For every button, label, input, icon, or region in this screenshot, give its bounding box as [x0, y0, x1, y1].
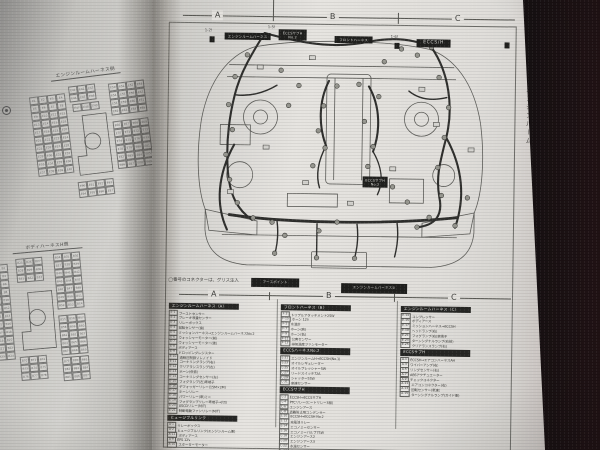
engine-bay-wiring-diagram: [166, 24, 515, 279]
connector-label: クリアランスランプ(右): [412, 343, 447, 348]
connector-location-grid-engine: エンジンルームハーネス側 E1E2E3E4E5E6E7E8E9E10E11E12…: [27, 63, 160, 206]
table-section-header: エンジンルームハーネス〈C〉: [401, 305, 471, 313]
grid-cell: E97: [105, 186, 115, 195]
grid-cell: E49: [90, 101, 100, 110]
left-book-page: エンジンルームハーネス側 E1E2E3E4E5E6E7E8E9E10E11E12…: [0, 0, 158, 450]
right-book-page: A B C: [152, 0, 552, 450]
table-row: E-25クリアランスランプ(右): [400, 343, 508, 349]
engine-outline-icon: [18, 290, 57, 351]
top-column-ruler: [183, 15, 515, 21]
connector-table-column-b: フロントハーネス〈B〉F-3トリプルアタッチメント25WF-15ホーン 12VF…: [279, 302, 393, 450]
connector-code: L-31: [280, 380, 290, 386]
connector-label: スターターモーター: [178, 442, 208, 447]
harness-label-eccs-h: ECCS/H: [416, 39, 450, 47]
table-row: F-13排気温度ファンモーター: [280, 341, 392, 347]
connector-code: E-25: [400, 342, 410, 348]
grid-cell: B33: [34, 273, 44, 282]
connector-label: 車速センサー: [291, 380, 311, 385]
connector-label: ターンシグナルランプ(ガイド側): [411, 392, 459, 398]
grid-cells: E1E2E3E4E5E6E7E8E9E10E11E12E13E14E15E16E…: [28, 73, 160, 206]
grid-cell: B54: [75, 299, 85, 308]
harness-label-front: フロントハーネス: [335, 36, 373, 44]
table-row: L-31車速センサー: [280, 380, 392, 386]
connector-location-grid-body: ボディハーネスH側 B1B2B3B4B5B6B7B8B9B10B11B12B13…: [0, 239, 118, 387]
grid-cell: B24: [6, 351, 16, 360]
column-marker-c: C: [452, 14, 464, 24]
connector-table-column-c: エンジンルームハーネス〈C〉E-14コンプレッサーE-15ボディアースE-17ミ…: [400, 304, 509, 398]
connector-label: 制動電動ファンリレー(M/T): [179, 408, 220, 414]
book-photo: エンジンルームハーネス側 E1E2E3E4E5E6E7E8E9E10E11E12…: [0, 0, 600, 450]
page-title: エンジンルーム: [524, 87, 533, 146]
connector-code: A-15: [400, 391, 410, 397]
callout-square-icon: [394, 43, 399, 49]
connector-code: F-13: [280, 341, 290, 347]
grid-cell: B87: [81, 371, 91, 380]
connector-label: 排気温度ファンモーター: [292, 341, 328, 347]
table-row: E-21制動電動ファンリレー(M/T): [167, 408, 271, 414]
connector-table-column-a: エンジンルームハーネス〈A〉E-1ブーストセンサーE-2ブレーキ液量センサーE-…: [167, 301, 273, 449]
page-ref-callout: 1-6!: [391, 35, 399, 39]
grid-cell: B69: [79, 345, 89, 354]
table-section-header: ECCSサブH: [280, 387, 350, 395]
callout-square-icon: [210, 36, 215, 42]
page-margin-caption: 2-1-1 エンジンルーム: [519, 25, 540, 146]
ruler-tick: [398, 13, 399, 24]
ruler-tick: [273, 0, 274, 21]
grease-note: ◯番号のコネクターは、グリス注入: [168, 278, 239, 285]
grid-cells: B1B2B3B4B5B6B7B8B9B10B11B12B13B14B15B16B…: [0, 249, 118, 387]
table-section-header: ヒュージブルリンク: [167, 415, 237, 423]
grid-cell: E65: [138, 103, 148, 112]
connector-code: E-21: [167, 408, 177, 414]
callout-square-icon: [504, 42, 509, 48]
engine-outline-icon: [73, 112, 114, 176]
table-section-header: フロントハーネス〈B〉: [281, 304, 351, 312]
table-section-header: エンジンルームハーネス〈A〉: [169, 302, 239, 310]
ruler-tick: [269, 292, 270, 300]
column-marker-a: A: [212, 10, 224, 20]
connector-code: A-10: [167, 442, 177, 448]
column-marker-b: B: [323, 291, 335, 301]
registration-mark-icon: [2, 106, 11, 115]
harness-label-engine-room: エンジンルームハーネス: [225, 32, 271, 40]
column-marker-a: A: [208, 289, 220, 299]
grid-cell: E40: [65, 165, 75, 174]
ruler-tick: [394, 294, 395, 302]
harness-label-eccs-sub-no2: ECCSサブH No.2: [279, 29, 307, 41]
table-section-header: ECCSサブH: [400, 349, 470, 357]
page-ref-callout: 1-5!: [268, 25, 276, 29]
grid-cell: E46: [87, 91, 97, 100]
earth-point-label: アースポイント: [251, 278, 299, 288]
grid-cell: B78: [39, 371, 49, 380]
harness-label-eccs-sub-mid: ECCSサブH No.2: [363, 176, 388, 188]
engine-room-harness2-label: エンジンルームハーネス②: [341, 283, 407, 294]
page-ref-callout: 1-2!: [205, 28, 213, 32]
column-marker-c: C: [448, 293, 460, 303]
section-number: 2-1-1: [526, 25, 532, 60]
table-section-header: ECCSハーネスNo.2: [280, 348, 350, 356]
column-marker-b: B: [327, 12, 339, 22]
